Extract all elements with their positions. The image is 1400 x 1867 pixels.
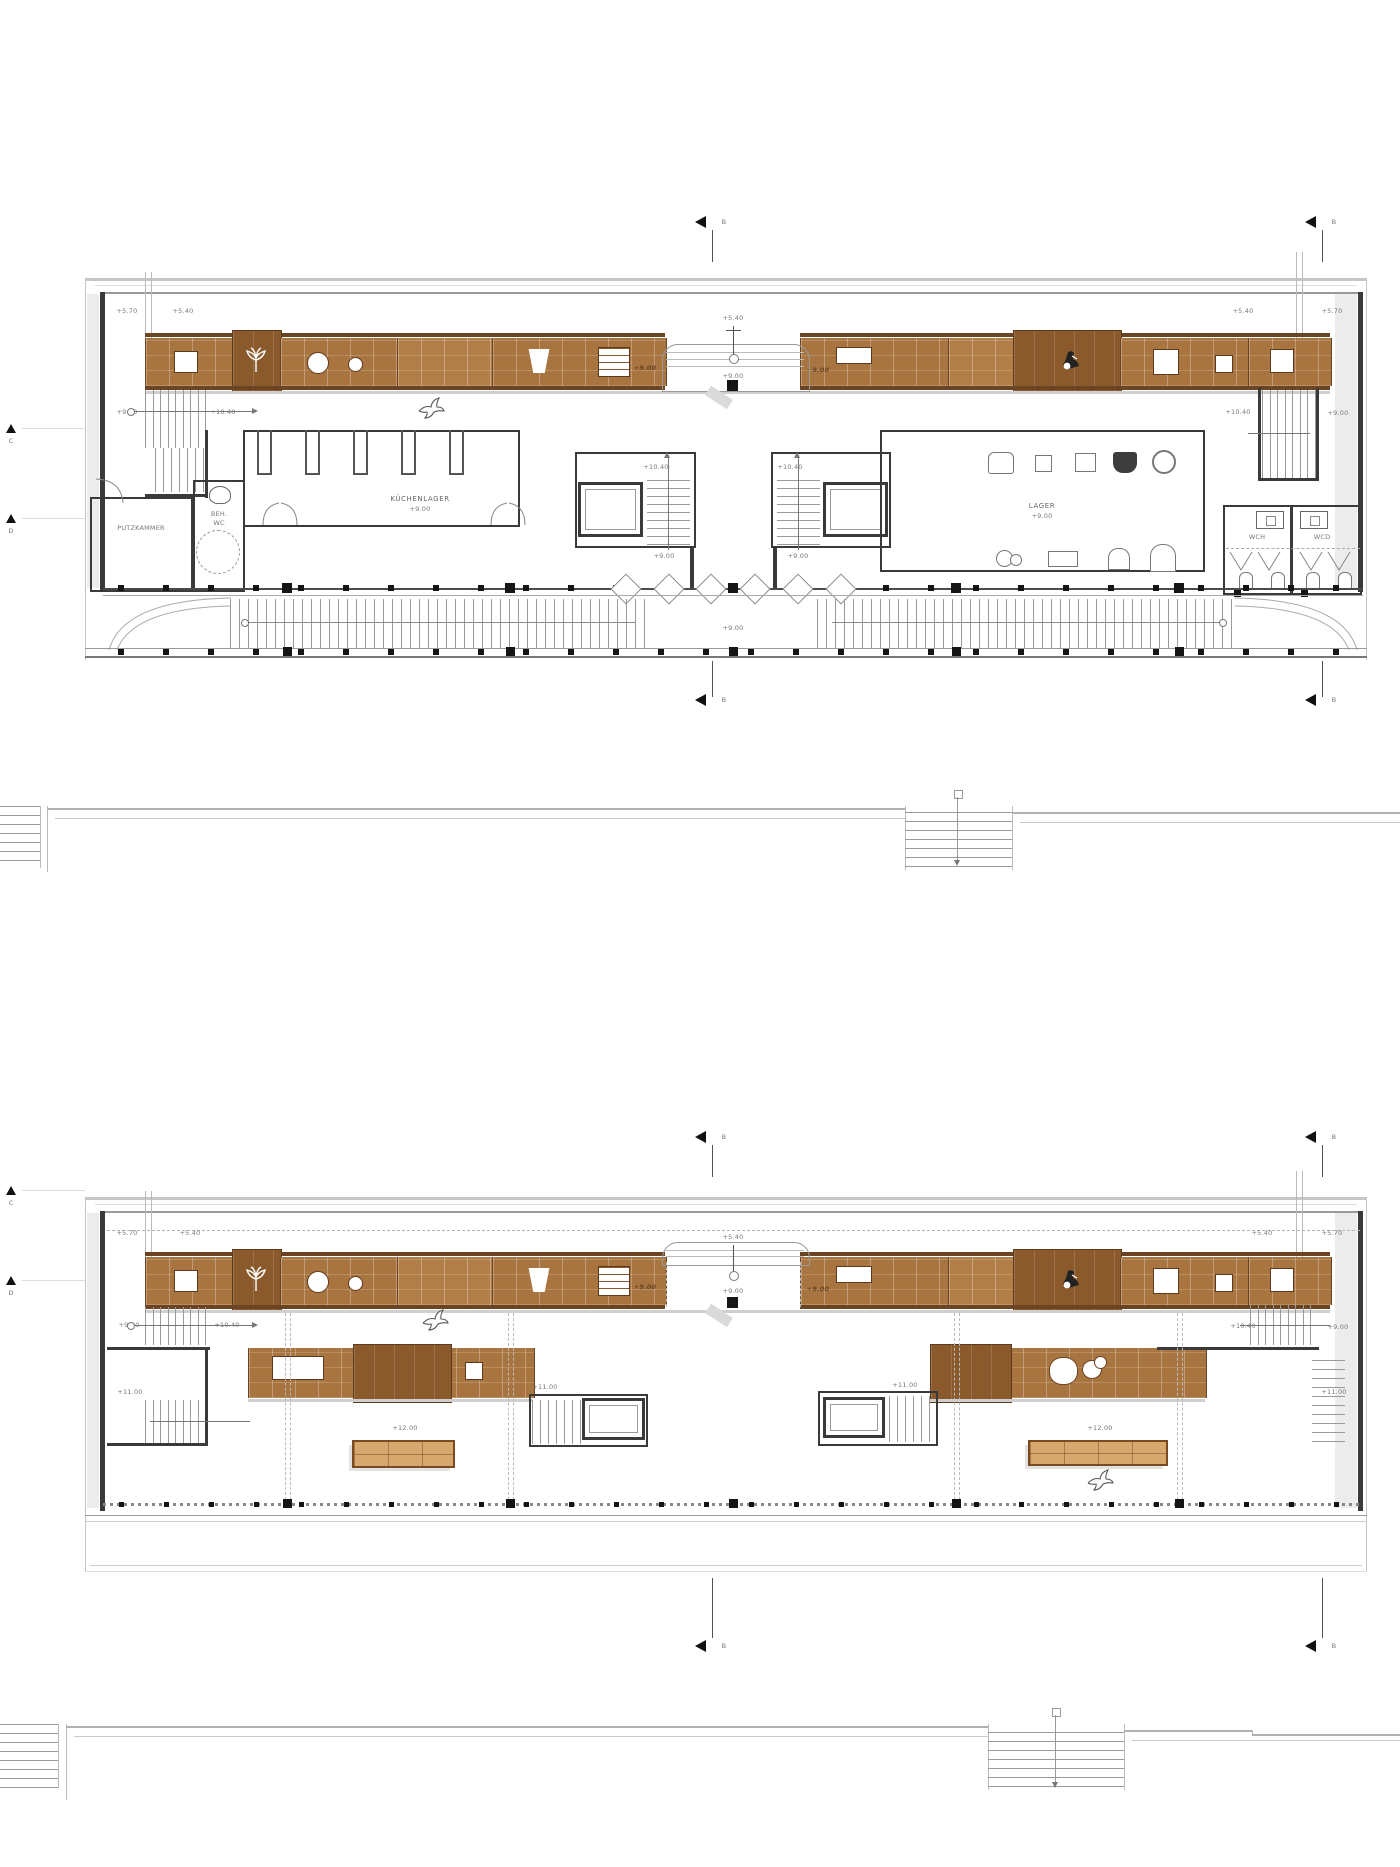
stair-start-icon [127, 1322, 135, 1330]
stair-tread [419, 599, 420, 649]
stair-tread [1312, 1360, 1345, 1361]
stair-tread [1204, 599, 1205, 649]
elevation-label: +5.70 [117, 307, 138, 315]
stair-direction-icon [252, 1322, 258, 1328]
canopy-glazing [666, 1256, 804, 1257]
edge-line [40, 806, 41, 868]
stair-tread [934, 599, 935, 649]
stair-tread [905, 830, 1012, 831]
canopy-glazing [666, 352, 804, 353]
right-wall [1358, 1211, 1363, 1511]
row-marker-line [22, 1190, 85, 1191]
elevator-cab [830, 1404, 878, 1431]
wc-divider-wall [1290, 505, 1293, 595]
stair-tread [1141, 599, 1142, 649]
elevation-label: +10.40 [643, 463, 668, 471]
elevation-label: +10.40 [777, 463, 802, 471]
stair-tread [145, 1307, 146, 1345]
grid-line [513, 1313, 514, 1500]
section-line [712, 230, 713, 262]
row-marker-label: D [8, 1289, 13, 1297]
stair-start-icon [241, 619, 249, 627]
elevator-cab [589, 1405, 638, 1433]
entry-canopy [662, 1242, 810, 1266]
elevation-label: +5.40 [1252, 1229, 1273, 1237]
elevation-label: +5.70 [1322, 1229, 1343, 1237]
column-marker [729, 1499, 738, 1508]
stair-tread [1195, 599, 1196, 649]
stair-tread [1312, 1369, 1345, 1370]
stair-tread [239, 599, 240, 649]
elevation-label: +9.00 [807, 366, 829, 374]
basin-icon [307, 352, 329, 374]
shelf-pair [449, 473, 464, 475]
elevation-label: +10.40 [1225, 408, 1250, 416]
room-label: LAGER [1029, 502, 1055, 510]
stair-tread [1033, 599, 1034, 649]
gallery-wood-dark [353, 1344, 452, 1403]
stair-tread [590, 599, 591, 649]
stair-direction-icon [664, 452, 670, 458]
band-edge [145, 333, 665, 337]
stair-core-right [889, 1396, 935, 1442]
stair-tread [0, 1724, 58, 1725]
room-label: WCD [1314, 533, 1331, 541]
section-line [712, 1145, 713, 1177]
deck-edge [47, 808, 905, 810]
equipment-icon [1058, 1269, 1082, 1293]
crate-icon [1048, 551, 1078, 567]
sink-icon [1256, 511, 1284, 529]
elevation-label: +9.00 [788, 552, 809, 560]
elevation-label: +11.00 [1321, 1388, 1346, 1396]
stair-tread [988, 599, 989, 649]
roof-outline [85, 1197, 1367, 1200]
skylight-icon [1215, 355, 1233, 373]
void-edge [800, 1262, 801, 1307]
elevation-label: +9.00 [654, 552, 675, 560]
stair-tread [1114, 599, 1115, 649]
stair-tread [190, 1307, 191, 1345]
wood-module [948, 338, 1015, 386]
stair-tread [556, 1400, 557, 1444]
stair-tread [383, 599, 384, 649]
shelf-pair [449, 430, 451, 474]
void-edge [666, 1262, 667, 1307]
stair-tread [1307, 390, 1308, 478]
stair-tread [572, 1400, 573, 1444]
drum-icon [1152, 450, 1176, 474]
stair-start-icon [1219, 619, 1227, 627]
room-label: PUTZKAMMER [117, 524, 165, 532]
stair-tread [532, 1400, 533, 1444]
stair-wall [205, 1347, 208, 1446]
room-level: +9.00 [1032, 512, 1053, 520]
stair-tread [175, 1307, 176, 1345]
stair-tread [905, 866, 1012, 867]
stair-center-line [957, 797, 958, 861]
floor-edge [85, 1515, 1367, 1516]
stair-right [1262, 390, 1316, 478]
stair-tread [500, 599, 501, 649]
stair-start-icon [127, 408, 135, 416]
sack-icon [1113, 452, 1137, 473]
entry-door-diamond [782, 573, 813, 604]
stair-tread [491, 599, 492, 649]
gallery-wood-dark [930, 1344, 1012, 1403]
canopy-glazing [666, 1250, 804, 1251]
deck-edge-inner [55, 818, 905, 819]
stair-tread [916, 599, 917, 649]
stair-tread [563, 599, 564, 649]
stair-wall [1258, 478, 1319, 481]
stair-tread [1312, 1378, 1345, 1379]
row-marker-icon [6, 514, 16, 523]
stair-tread [1186, 599, 1187, 649]
band-edge [145, 1252, 665, 1256]
stair-tread [988, 1759, 1124, 1760]
stall-doors-icon [1228, 551, 1360, 573]
stair-tread [905, 1396, 906, 1442]
stair-tread [952, 599, 953, 649]
stair-tread [1060, 599, 1061, 649]
column-marker [283, 1499, 292, 1508]
top-wall [103, 1211, 1363, 1213]
plant-icon [244, 346, 268, 374]
row-marker-icon [6, 1276, 16, 1285]
stair-tread [401, 599, 402, 649]
plumb-line [733, 1245, 734, 1273]
stair-tread [464, 599, 465, 649]
row-marker-icon [6, 424, 16, 433]
band-edge [145, 1305, 665, 1309]
elevation-label: +9.00 [634, 364, 656, 372]
room-label: WC [213, 519, 224, 527]
section-line [712, 1578, 713, 1638]
stair-tread [266, 599, 267, 649]
stair-tread [626, 599, 627, 649]
section-label: B [722, 218, 727, 226]
stair-tread [0, 1769, 58, 1770]
stair-tread [880, 599, 881, 649]
stair-tread [961, 599, 962, 649]
stair-tread [145, 390, 146, 448]
left-wall [100, 1211, 105, 1511]
sink-bowl [1310, 516, 1320, 526]
stair-tread [970, 599, 971, 649]
basin-icon [307, 1271, 329, 1293]
equipment-icon [1058, 350, 1082, 374]
double-door-icon [490, 500, 526, 526]
stair-tread [410, 599, 411, 649]
grid-line [508, 1313, 509, 1500]
section-line [1322, 230, 1323, 262]
deck-edge [1252, 1734, 1400, 1736]
stair-tread [617, 599, 618, 649]
wood-module [948, 1257, 1015, 1305]
grid-columns [103, 583, 1363, 593]
section-label: B [722, 696, 727, 704]
stair-tread [1312, 1414, 1345, 1415]
stair-left-upper [145, 390, 205, 448]
column-marker [1175, 647, 1184, 656]
entry-door-diamond [695, 573, 726, 604]
canopy-glazing [666, 366, 804, 367]
shelf-pair [257, 473, 272, 475]
elevation-label: +11.00 [892, 1381, 917, 1389]
band-shadow [930, 1399, 1205, 1402]
stair-arrow-line [1248, 433, 1310, 434]
stair-tread [862, 599, 863, 649]
stair-tread [581, 599, 582, 649]
stair-tread [302, 599, 303, 649]
stair-tread [347, 599, 348, 649]
elevation-label: +10.40 [210, 408, 235, 416]
stair-tread [1024, 599, 1025, 649]
edge-stair [0, 806, 40, 868]
stair-tread [1168, 599, 1169, 649]
stair-tread [171, 448, 172, 492]
stair-tread [921, 1396, 922, 1442]
stair-tread [580, 1400, 581, 1444]
wood-module [397, 338, 494, 386]
elevation-label: +5.40 [173, 307, 194, 315]
stair-marker [954, 790, 963, 799]
shelf-icon [598, 1266, 630, 1296]
plumb-circle-icon [729, 1271, 739, 1281]
elevation-label: +9.00 [807, 1285, 829, 1293]
stair-tread [548, 1400, 549, 1444]
stair-tread [905, 839, 1012, 840]
stair-wall [107, 1443, 208, 1446]
site-line [90, 1565, 1362, 1566]
stair-tread [644, 599, 645, 649]
section-arrow-icon [695, 694, 706, 706]
storage-bag-icon [988, 452, 1014, 474]
stair-tread [155, 448, 156, 492]
skylight-icon [174, 351, 198, 373]
stair-tread [564, 1400, 565, 1444]
roof-outline-inner [95, 1204, 1357, 1205]
stair-tread [889, 1396, 890, 1442]
room-label: BEH. [211, 510, 227, 518]
sink-icon [1300, 511, 1328, 529]
elevation-label: +5.70 [1322, 307, 1343, 315]
stair-tread [1177, 599, 1178, 649]
stair-tread [572, 599, 573, 649]
wood-module [800, 338, 950, 386]
stair-tread [907, 599, 908, 649]
bench [352, 1440, 455, 1468]
stair-arrow-line [130, 411, 252, 412]
stair-tread [0, 1742, 58, 1743]
stair-tread [1231, 599, 1232, 649]
stair-tread [905, 812, 1012, 813]
band-edge [145, 386, 665, 390]
stair-tread [988, 1750, 1124, 1751]
stair-tread [1312, 1396, 1345, 1397]
stair-direction-icon [252, 408, 258, 414]
stair-tread [898, 599, 899, 649]
wood-module [280, 338, 399, 386]
elevation-label: +9.00 [1328, 409, 1349, 417]
stair-wall [107, 1347, 210, 1350]
band-edge [800, 386, 1330, 390]
band-shadow [145, 1310, 1330, 1313]
box-icon [1035, 455, 1052, 472]
walkway-stair-right [817, 599, 1237, 649]
section-arrow-icon [1305, 216, 1316, 228]
stair-tread [835, 599, 836, 649]
stair-left-upper [145, 1307, 205, 1345]
stair-tread [284, 599, 285, 649]
deck-edge-inner [74, 1736, 988, 1737]
stair-tread [0, 842, 40, 843]
shelf-row [243, 430, 520, 480]
elevator-left [582, 1398, 645, 1440]
stair-tread [997, 599, 998, 649]
stair-tread [527, 599, 528, 649]
shelf-pair [414, 430, 416, 474]
drawing-sheet: B B +5.70 +5.40 +5.40 +5.70 +9.00 [0, 0, 1400, 1867]
stair-tread [1123, 599, 1124, 649]
entry-door-diamond [653, 573, 684, 604]
stair-tread [1300, 390, 1301, 478]
stair-tread [275, 599, 276, 649]
grid-columns [103, 1499, 1363, 1508]
stair-tread [889, 599, 890, 649]
stair-tread [853, 599, 854, 649]
plant-icon [244, 1265, 268, 1293]
stair-tread [1312, 1441, 1345, 1442]
section-line [1322, 661, 1323, 697]
column-marker [505, 583, 515, 593]
stair-tread [925, 599, 926, 649]
stair-tread [1312, 1423, 1345, 1424]
elevation-label: +9.00 [634, 1283, 656, 1291]
stair-tread [871, 599, 872, 649]
section-label: B [722, 1133, 727, 1141]
stair-tread [198, 1307, 199, 1345]
stair-tread [160, 390, 161, 448]
walkway-stair-left [230, 599, 650, 649]
elevator-left [578, 482, 643, 537]
stair-tread [257, 599, 258, 649]
section-label: B [722, 1642, 727, 1650]
skylight-icon [174, 1270, 198, 1292]
column-marker [282, 583, 292, 593]
stair-tread [509, 599, 510, 649]
elevation-label: +5.40 [1233, 307, 1254, 315]
stair-tread [1078, 599, 1079, 649]
elevation-label: +11.00 [532, 1383, 557, 1391]
stair-tread [0, 824, 40, 825]
stair-tread [153, 390, 154, 448]
stair-tread [1159, 599, 1160, 649]
elevation-label: +12.00 [392, 1424, 417, 1432]
wood-module [492, 1257, 667, 1305]
bird-icon [1085, 1468, 1115, 1492]
skylight-icon [1153, 1268, 1179, 1294]
deck-edge [1124, 1730, 1252, 1732]
pot-icon [1010, 554, 1022, 566]
section-arrow-icon [695, 1131, 706, 1143]
stair-side [1012, 806, 1013, 870]
column-marker [283, 647, 292, 656]
sack-icon [1108, 548, 1130, 570]
stair-tread [1292, 390, 1293, 478]
stair-tread [153, 1307, 154, 1345]
skylight-icon [1153, 349, 1179, 375]
stair-tread [179, 448, 180, 492]
stair-tread [1132, 599, 1133, 649]
stair-tread [897, 1396, 898, 1442]
stair-tread [905, 848, 1012, 849]
stair-tread [198, 390, 199, 448]
stair-direction-icon [1052, 1782, 1058, 1788]
grid-line [290, 1313, 291, 1500]
stair-arrow-line [150, 1421, 250, 1422]
shelf-pair [353, 473, 368, 475]
stair-tread [608, 599, 609, 649]
box-icon [1075, 453, 1096, 472]
stair-marker [1052, 1708, 1061, 1717]
stair-direction-icon [954, 860, 960, 866]
frame-right [1366, 278, 1367, 660]
terrace-edge-outer [85, 656, 1367, 658]
stair-tread [599, 599, 600, 649]
shelf-pair [366, 430, 368, 474]
stair-tread [929, 1396, 930, 1442]
edge-line [58, 1724, 59, 1788]
column-marker [506, 1499, 515, 1508]
shelf-pair [305, 473, 320, 475]
basin-icon [348, 1276, 363, 1291]
grid-line [1182, 1313, 1183, 1500]
bird-icon [416, 396, 446, 420]
stair-arrow-line [130, 1325, 252, 1326]
basin-icon [348, 357, 363, 372]
deck-edge [1012, 812, 1400, 814]
edge-line [66, 1724, 67, 1800]
floor-edge-inner [85, 1521, 1367, 1522]
stair-tread [0, 851, 40, 852]
stair-tread [518, 599, 519, 649]
stair-tread [1042, 599, 1043, 649]
stair-tread [979, 599, 980, 649]
stair-tread [905, 857, 1012, 858]
stair-tread [0, 860, 40, 861]
stair-tread [0, 806, 40, 807]
double-door-icon [262, 500, 298, 526]
ramp-curve-left [103, 596, 233, 654]
site-line-outer [85, 1571, 1367, 1572]
room-level: +9.00 [410, 505, 431, 513]
wood-module [397, 1257, 494, 1305]
stair-tread [311, 599, 312, 649]
stair-tread [1150, 599, 1151, 649]
elevation-label: +11.00 [117, 1388, 142, 1396]
plumb-tick [726, 330, 741, 331]
wood-module [492, 338, 667, 386]
row-marker-icon [6, 1186, 16, 1195]
skylight-icon [465, 1362, 483, 1380]
stair-tread [446, 599, 447, 649]
grid-line [285, 1313, 286, 1500]
stair-tread [635, 599, 636, 649]
stair-tread [1051, 599, 1052, 649]
stair-tread [338, 599, 339, 649]
